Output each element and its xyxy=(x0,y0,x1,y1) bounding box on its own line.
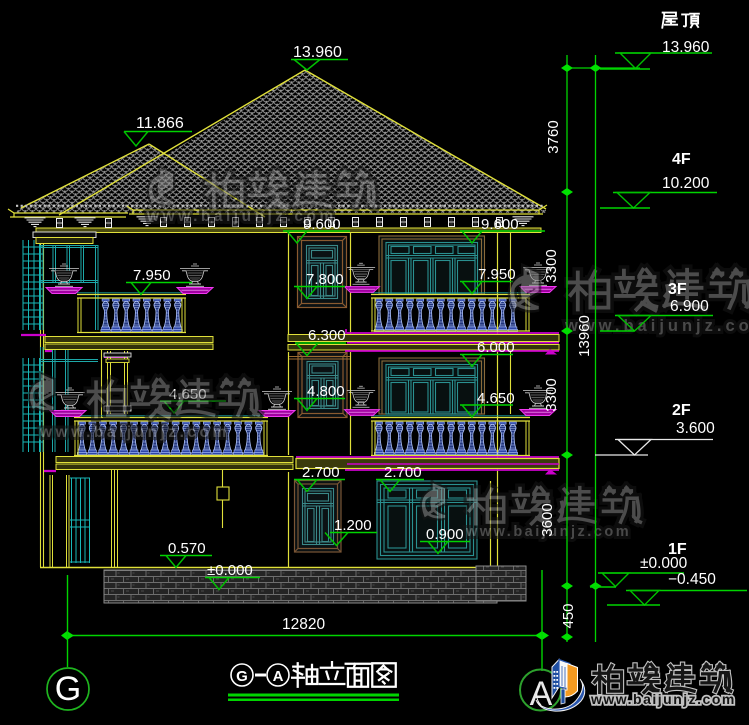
svg-text:3300: 3300 xyxy=(543,249,560,282)
svg-text:10.200: 10.200 xyxy=(662,175,710,192)
svg-text:450: 450 xyxy=(560,603,577,628)
svg-text:7.800: 7.800 xyxy=(306,271,344,288)
svg-text:2.700: 2.700 xyxy=(302,464,340,481)
svg-text:4F: 4F xyxy=(672,151,691,168)
svg-text:1.200: 1.200 xyxy=(334,517,372,534)
svg-text:7.950: 7.950 xyxy=(478,266,516,283)
svg-text:G: G xyxy=(55,670,81,708)
svg-text:3600: 3600 xyxy=(539,503,556,536)
svg-text:www.baijunjz.com: www.baijunjz.com xyxy=(590,691,736,707)
svg-text:6.300: 6.300 xyxy=(308,327,346,344)
svg-text:www.baijunjz.com: www.baijunjz.com xyxy=(39,424,230,441)
svg-text:A: A xyxy=(273,668,284,685)
svg-text:3300: 3300 xyxy=(543,378,560,411)
svg-text:2.700: 2.700 xyxy=(384,464,422,481)
svg-text:3760: 3760 xyxy=(545,120,562,153)
svg-text:7.950: 7.950 xyxy=(133,267,171,284)
svg-text:±0.000: ±0.000 xyxy=(640,555,688,572)
svg-text:G: G xyxy=(236,668,248,685)
svg-text:12820: 12820 xyxy=(282,616,325,633)
svg-text:0.570: 0.570 xyxy=(168,540,206,557)
svg-text:13.960: 13.960 xyxy=(293,44,342,61)
svg-text:4.800: 4.800 xyxy=(307,383,345,400)
svg-text:3.600: 3.600 xyxy=(676,420,715,437)
svg-text:±0.000: ±0.000 xyxy=(207,562,253,579)
svg-text:−0.450: −0.450 xyxy=(668,571,716,588)
svg-text:6.900: 6.900 xyxy=(670,298,709,315)
svg-text:0.900: 0.900 xyxy=(426,526,464,543)
svg-text:2F: 2F xyxy=(672,402,691,419)
svg-text:11.866: 11.866 xyxy=(136,115,184,132)
svg-text:3F: 3F xyxy=(668,281,687,298)
svg-text:6.000: 6.000 xyxy=(477,339,515,356)
svg-text:13960: 13960 xyxy=(576,315,593,357)
